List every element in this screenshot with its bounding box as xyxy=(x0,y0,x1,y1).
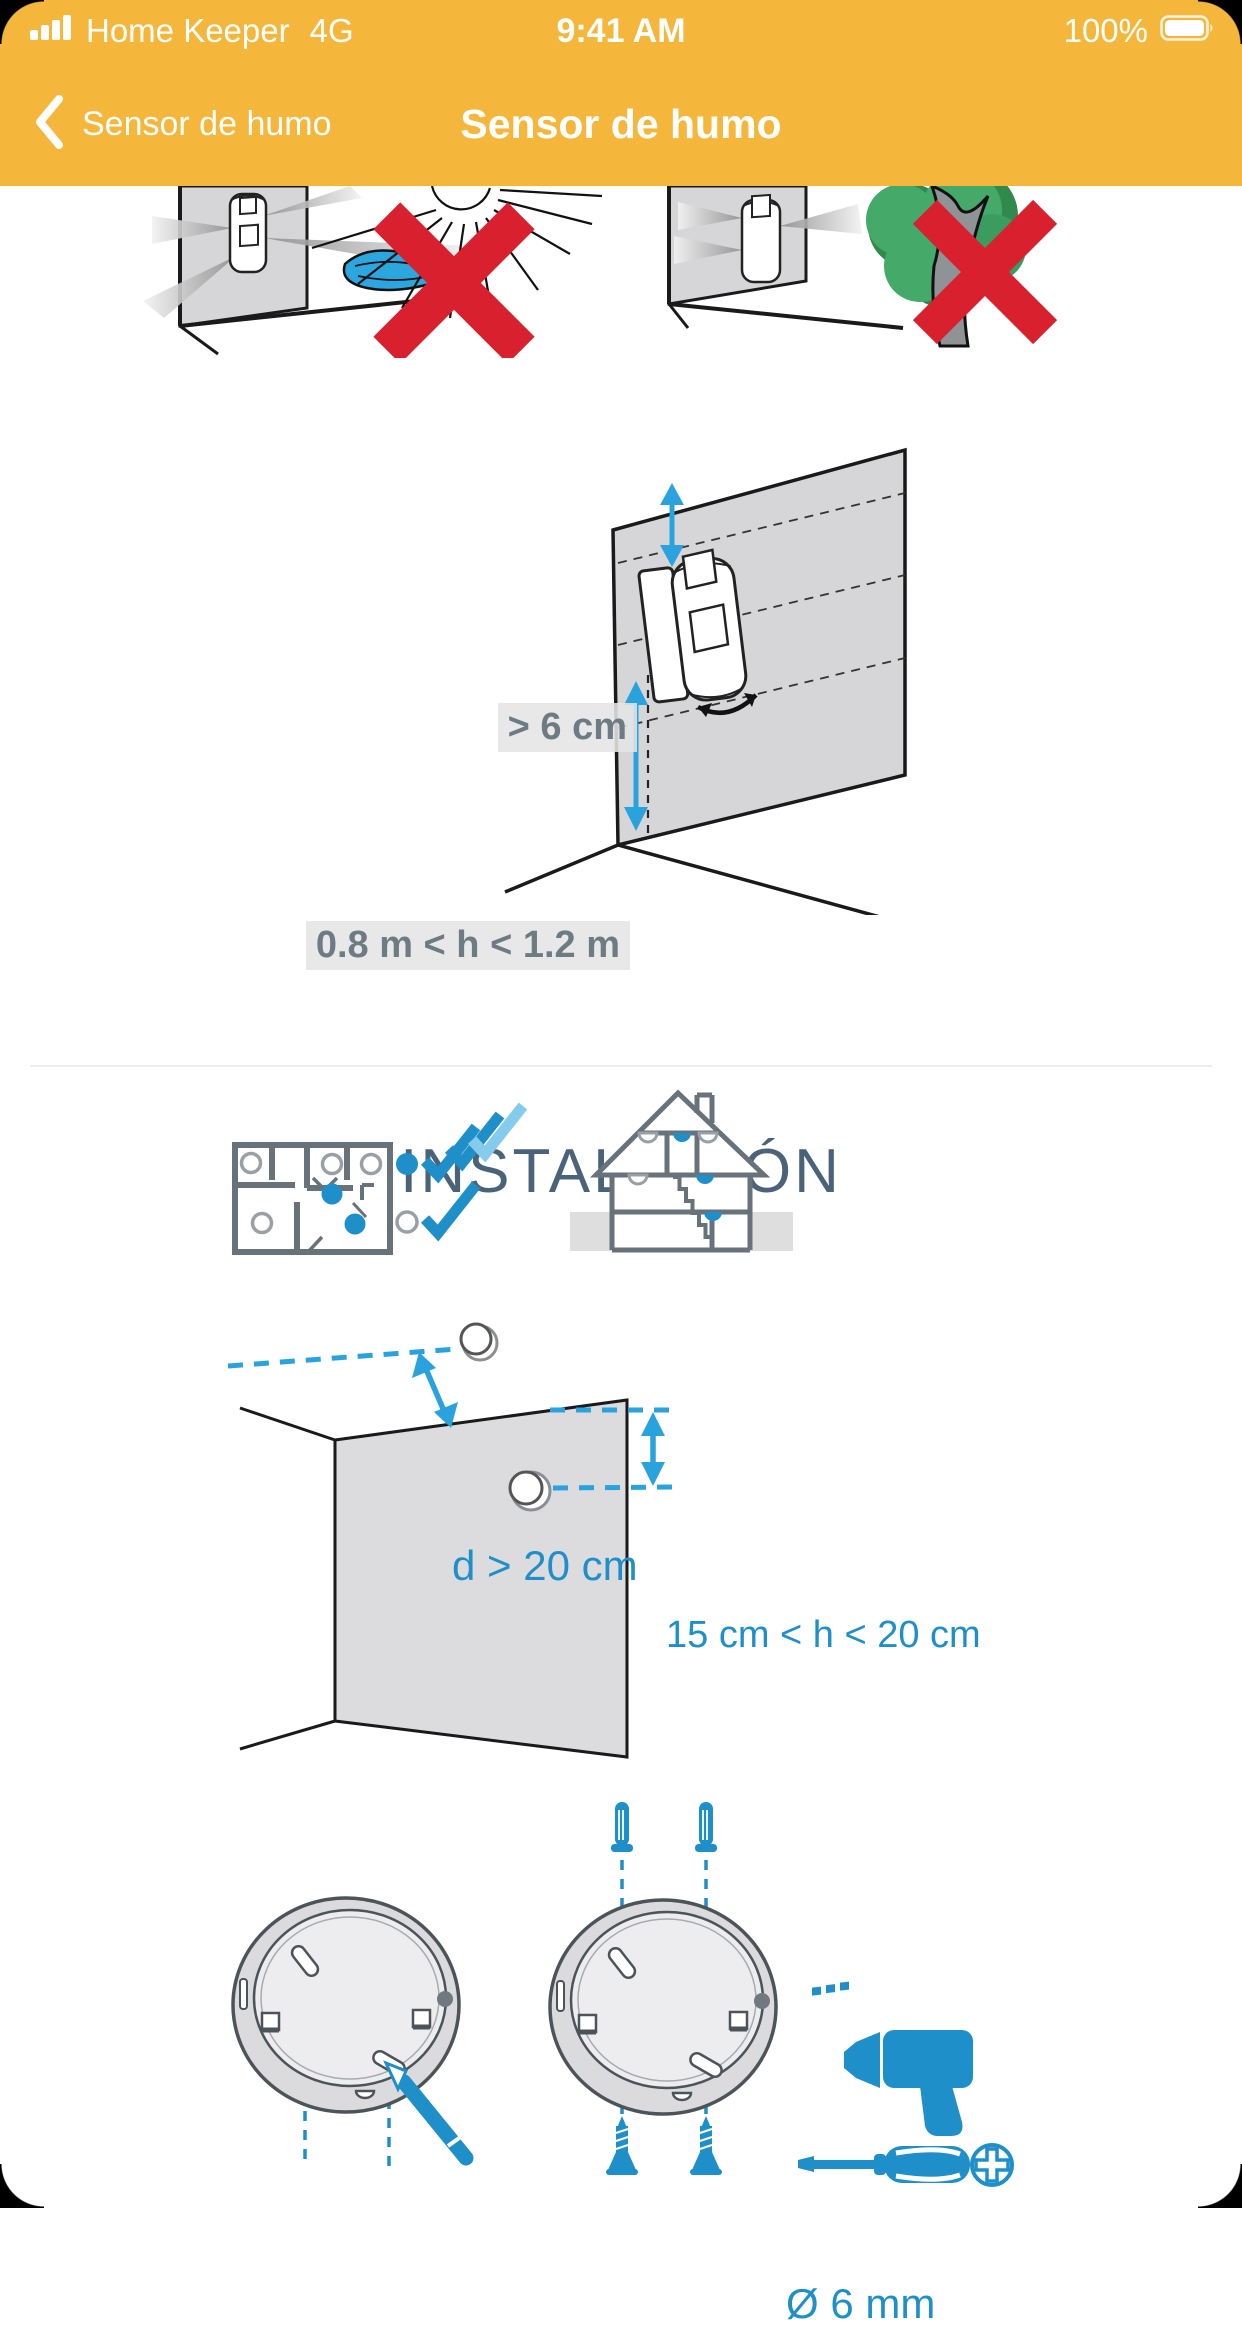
corner-distance-diagram xyxy=(220,1300,1010,1770)
wall-plug-icon xyxy=(611,1802,633,1852)
sensor-height-diagram xyxy=(300,445,1020,915)
motion-sensor-device xyxy=(230,194,266,272)
avoid-tree-illustration xyxy=(669,186,1057,346)
app-header: Home Keeper 4G 9:41 AM 100% Sensor de hu… xyxy=(0,0,1242,186)
motion-sensor-device xyxy=(637,548,748,707)
clock-label: 9:41 AM xyxy=(0,0,1242,62)
wall-height-label: 15 cm < h < 20 cm xyxy=(666,1614,981,1657)
legend-optional xyxy=(397,1185,476,1233)
wall-detector xyxy=(510,1472,550,1510)
page-title: Sensor de humo xyxy=(0,62,1242,186)
avoid-sunlight-illustration xyxy=(143,186,602,358)
drill-diameter-label: Ø 6 mm xyxy=(786,2280,935,2328)
motion-sensor-device xyxy=(742,186,780,282)
manual-page-content: > 6 cm 0.8 m < h < 1.2 m INSTALACIÓN xyxy=(0,186,1242,2208)
legend-recommended xyxy=(396,1106,523,1175)
battery-percent-label: 100% xyxy=(1064,12,1148,50)
base-mounting-illustration xyxy=(180,1780,1242,2208)
floor-plan-markers xyxy=(242,1154,381,1235)
placement-warnings-illustration xyxy=(40,186,1205,358)
distance-arrow xyxy=(412,1352,458,1428)
ceiling-distance-label: d > 20 cm xyxy=(452,1542,638,1590)
status-bar: Home Keeper 4G 9:41 AM 100% xyxy=(0,0,1242,62)
height-range-label: 0.8 m < h < 1.2 m xyxy=(306,921,630,970)
phillips-screw-icon xyxy=(972,2145,1012,2185)
ceiling-detector xyxy=(461,1324,497,1360)
nav-bar: Sensor de humo Sensor de humo xyxy=(0,62,1242,186)
screw-icon xyxy=(606,2116,638,2175)
wall-plug-icon xyxy=(695,1802,717,1852)
drill-icon xyxy=(812,1982,973,2136)
top-clearance-label: > 6 cm xyxy=(498,703,637,752)
house-section-diagram xyxy=(570,1093,793,1251)
screw-icon xyxy=(690,2116,722,2175)
screwdriver-icon xyxy=(798,2146,970,2183)
base-fixing-step xyxy=(550,1802,776,2175)
wall-height-arrow xyxy=(641,1412,665,1486)
section-divider xyxy=(30,1065,1212,1067)
base-marking-step xyxy=(233,1898,466,2168)
battery-icon xyxy=(1160,12,1218,50)
detector-location-diagrams xyxy=(225,1085,1025,1275)
